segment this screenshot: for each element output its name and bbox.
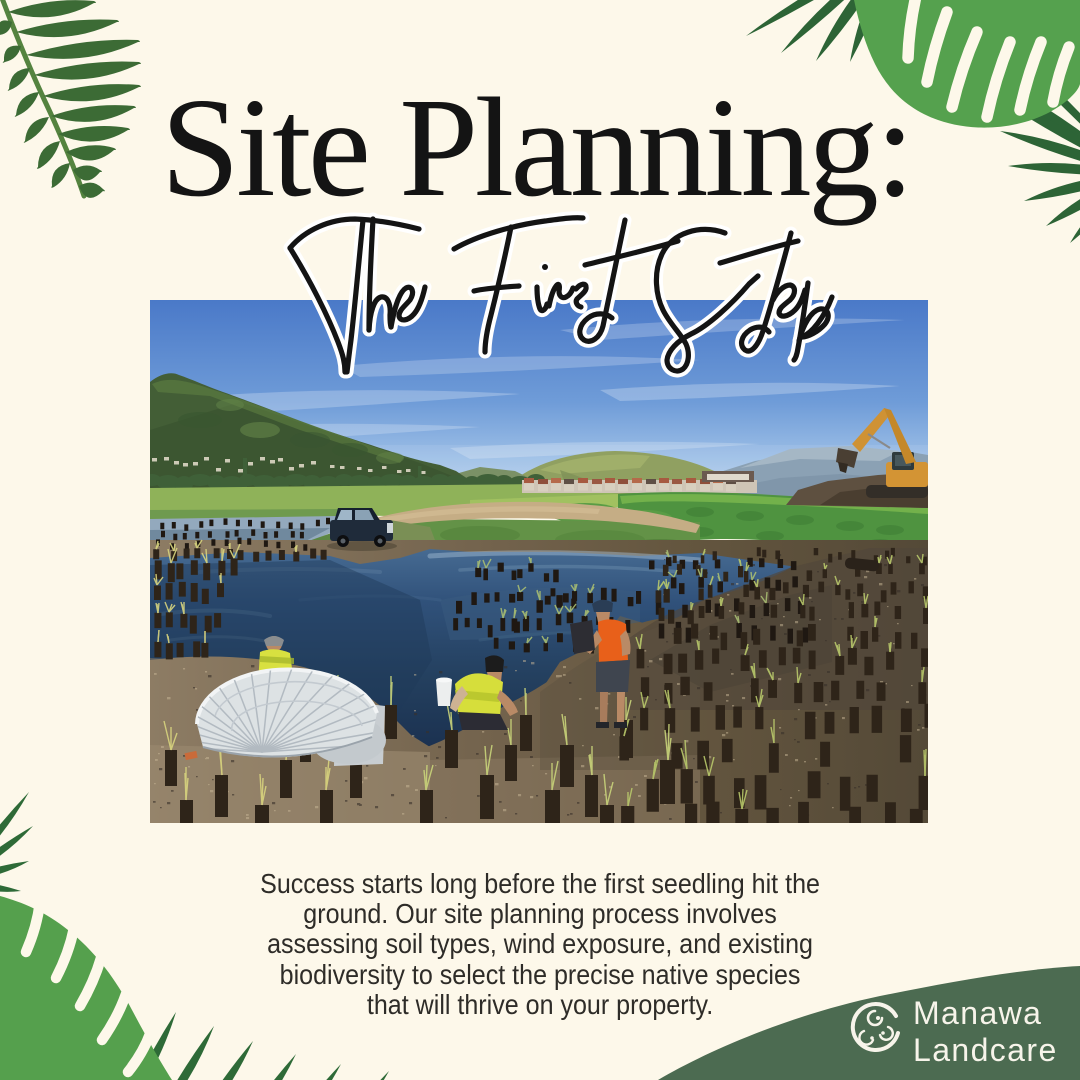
svg-text:that will thrive on your prope: that will thrive on your property. <box>367 989 713 1021</box>
svg-text:Site Planning:: Site Planning: <box>161 68 911 226</box>
svg-text:Success starts long before the: Success starts long before the first see… <box>260 868 820 900</box>
svg-text:assessing soil types, wind exp: assessing soil types, wind exposure, and… <box>267 928 813 960</box>
svg-text:biodiversity to select the pre: biodiversity to select the precise nativ… <box>280 959 801 991</box>
svg-text:ground. Our site planning proc: ground. Our site planning process involv… <box>303 898 776 930</box>
svg-text:Manawa: Manawa <box>913 995 1042 1031</box>
svg-text:Landcare: Landcare <box>913 1032 1058 1068</box>
